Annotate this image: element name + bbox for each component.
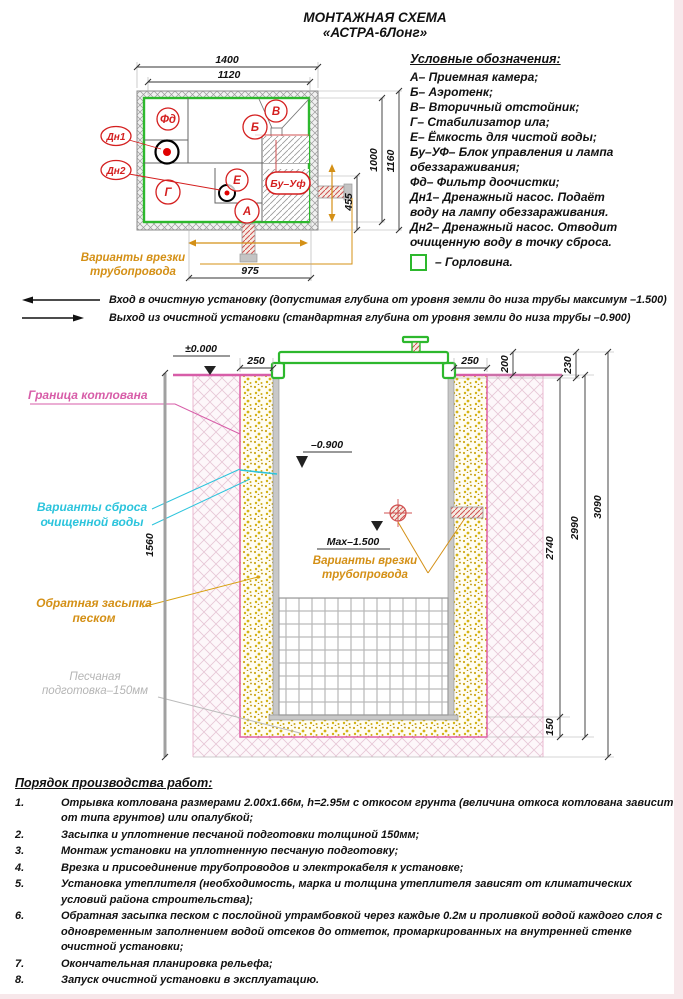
pump2-label: Дн2 bbox=[106, 166, 126, 177]
legend-heading: Условные обозначения: bbox=[410, 52, 672, 67]
dim-1000: 1000 bbox=[368, 148, 380, 172]
item-number: 7. bbox=[15, 957, 61, 973]
procedure-item: 5. Установка утеплителя (необходимость, … bbox=[15, 877, 675, 908]
label-sand-bed-line2: подготовка–150мм bbox=[20, 684, 170, 698]
pump1-label: Дн1 bbox=[106, 132, 126, 143]
label-backfill: Обратная засыпка песком bbox=[30, 596, 158, 625]
dim-455: 455 bbox=[343, 193, 355, 212]
outlet-arrow-icon bbox=[22, 313, 100, 323]
pipe-entry-right bbox=[451, 507, 483, 518]
tank-wall-right bbox=[448, 378, 454, 717]
hatch-region-upper bbox=[263, 136, 309, 163]
legend-item: воду на лампу обеззараживания. bbox=[410, 205, 672, 220]
tank-wall-left bbox=[273, 378, 279, 717]
legend-item: обеззараживания; bbox=[410, 160, 672, 175]
bottom-pipe-flange bbox=[240, 254, 257, 262]
dim-2740: 2740 bbox=[544, 536, 556, 561]
item-number: 8. bbox=[15, 973, 61, 989]
procedure-item: 2. Засыпка и уплотнение песчаной подгото… bbox=[15, 828, 675, 844]
montage-scheme-page: МОНТАЖНАЯ СХЕМА «АСТРА-6Лонг» bbox=[0, 0, 683, 999]
compartment-v: В bbox=[272, 106, 280, 118]
legend-item: Дн1– Дренажный насос. Подаёт bbox=[410, 190, 672, 205]
item-text: Врезка и присоединение трубопроводов и э… bbox=[61, 861, 675, 877]
dim-150: 150 bbox=[544, 718, 556, 736]
dim-3090: 3090 bbox=[592, 495, 604, 519]
dim-250-right: 250 bbox=[460, 355, 479, 367]
work-procedure: Порядок производства работ: 1. Отрывка к… bbox=[15, 776, 675, 990]
item-number: 1. bbox=[15, 796, 61, 827]
procedure-item: 1. Отрывка котлована размерами 2.00х1.66… bbox=[15, 796, 675, 827]
control-unit-label: Бу–Уф bbox=[270, 178, 305, 190]
item-number: 2. bbox=[15, 828, 61, 844]
bottom-pipe-plan bbox=[242, 224, 255, 258]
inlet-note-row: Вход в очистную установку (допустимая гл… bbox=[22, 294, 667, 306]
procedure-heading: Порядок производства работ: bbox=[15, 776, 675, 792]
procedure-item: 8. Запуск очистной установки в эксплуата… bbox=[15, 973, 675, 989]
legend-item: Бу–УФ– Блок управления и лампа bbox=[410, 145, 672, 160]
item-number: 4. bbox=[15, 861, 61, 877]
page-title: МОНТАЖНАЯ СХЕМА «АСТРА-6Лонг» bbox=[265, 10, 485, 40]
title-line2: «АСТРА-6Лонг» bbox=[265, 25, 485, 40]
legend-item: Дн2– Дренажный насос. Отводит bbox=[410, 220, 672, 235]
plan-pipe-note-line1: Варианты врезки bbox=[62, 251, 204, 265]
item-text: Засыпка и уплотнение песчаной подготовки… bbox=[61, 828, 675, 844]
legend-item: Е– Ёмкость для чистой воды; bbox=[410, 130, 672, 145]
dim-250-left: 250 bbox=[246, 355, 265, 367]
procedure-item: 4. Врезка и присоединение трубопроводов … bbox=[15, 861, 675, 877]
item-text: Монтаж установки на уплотненную песчаную… bbox=[61, 844, 675, 860]
item-number: 5. bbox=[15, 877, 61, 908]
right-pipe-plan bbox=[318, 186, 344, 198]
dim-2990: 2990 bbox=[569, 516, 581, 541]
level-zero: ±0.000 bbox=[185, 343, 217, 355]
drain-pump-1 bbox=[156, 141, 179, 164]
label-discharge-line1: Варианты сброса bbox=[28, 500, 156, 515]
item-text: Запуск очистной установки в эксплуатацию… bbox=[61, 973, 675, 989]
procedure-item: 7. Окончательная планировка рельефа; bbox=[15, 957, 675, 973]
compartment-e: Е bbox=[233, 175, 241, 187]
compartment-a: А bbox=[242, 206, 251, 218]
compartment-g: Г bbox=[164, 187, 172, 199]
dim-1120: 1120 bbox=[218, 69, 241, 81]
item-text: Окончательная планировка рельефа; bbox=[61, 957, 675, 973]
outlet-note-text: Выход из очистной установки (стандартная… bbox=[109, 312, 630, 324]
gorlovina-swatch bbox=[410, 254, 427, 271]
page-edge-bottom bbox=[0, 994, 683, 999]
page-edge-right bbox=[674, 0, 683, 999]
label-discharge-line2: очищенной воды bbox=[28, 515, 156, 530]
legend-item: В– Вторичный отстойник; bbox=[410, 100, 672, 115]
tank-bottom-plate bbox=[269, 715, 458, 720]
legend: Условные обозначения: А– Приемная камера… bbox=[410, 52, 672, 271]
level-discharge: –0.900 bbox=[311, 439, 343, 451]
level-max: Max–1.500 bbox=[327, 536, 380, 548]
label-inlet-options: Варианты врезки трубопровода bbox=[300, 554, 430, 582]
inlet-arrow-icon bbox=[22, 295, 100, 305]
tank-ballast-grid bbox=[279, 598, 448, 715]
item-number: 6. bbox=[15, 909, 61, 956]
dim-1160: 1160 bbox=[385, 150, 397, 173]
dim-1400: 1400 bbox=[215, 54, 239, 66]
dim-1560: 1560 bbox=[144, 533, 156, 557]
legend-item: очищенную воду в точку сброса. bbox=[410, 235, 672, 250]
title-line1: МОНТАЖНАЯ СХЕМА bbox=[265, 10, 485, 25]
tank-lid bbox=[272, 337, 455, 378]
outlet-note-row: Выход из очистной установки (стандартная… bbox=[22, 312, 630, 324]
legend-item: Фд– Фильтр доочистки; bbox=[410, 175, 672, 190]
label-backfill-line2: песком bbox=[30, 611, 158, 626]
procedure-item: 3. Монтаж установки на уплотненную песча… bbox=[15, 844, 675, 860]
legend-item: Г– Стабилизатор ила; bbox=[410, 115, 672, 130]
label-backfill-line1: Обратная засыпка bbox=[30, 596, 158, 611]
label-sand-bed-line1: Песчаная bbox=[20, 670, 170, 684]
compartment-b: Б bbox=[251, 122, 259, 134]
sand-backfill-right bbox=[454, 375, 487, 737]
sand-backfill-left bbox=[240, 375, 273, 737]
legend-item: Б– Аэротенк; bbox=[410, 85, 672, 100]
gorlovina-label: – Горловина. bbox=[435, 255, 513, 270]
label-inlet-line1: Варианты врезки bbox=[300, 554, 430, 568]
item-text: Обратная засыпка песком с послойной утра… bbox=[61, 909, 675, 956]
legend-item: А– Приемная камера; bbox=[410, 70, 672, 85]
label-discharge: Варианты сброса очищенной воды bbox=[28, 500, 156, 529]
plan-pipe-note-line2: трубопровода bbox=[62, 265, 204, 279]
item-text: Установка утеплителя (необходимость, мар… bbox=[61, 877, 675, 908]
label-pit-boundary: Граница котлована bbox=[28, 388, 148, 403]
dim-230: 230 bbox=[562, 356, 574, 375]
compartment-fd: Фд bbox=[160, 114, 176, 126]
plan-pipe-note: Варианты врезки трубопровода bbox=[62, 251, 204, 279]
item-text: Отрывка котлована размерами 2.00х1.66м, … bbox=[61, 796, 675, 827]
dim-200: 200 bbox=[499, 355, 511, 374]
inlet-note-text: Вход в очистную установку (допустимая гл… bbox=[109, 294, 667, 306]
legend-gorlovina-row: – Горловина. bbox=[410, 254, 672, 271]
label-inlet-line2: трубопровода bbox=[300, 568, 430, 582]
dim-975: 975 bbox=[241, 265, 259, 277]
label-sand-bed: Песчаная подготовка–150мм bbox=[20, 670, 170, 698]
procedure-item: 6. Обратная засыпка песком с послойной у… bbox=[15, 909, 675, 956]
item-number: 3. bbox=[15, 844, 61, 860]
